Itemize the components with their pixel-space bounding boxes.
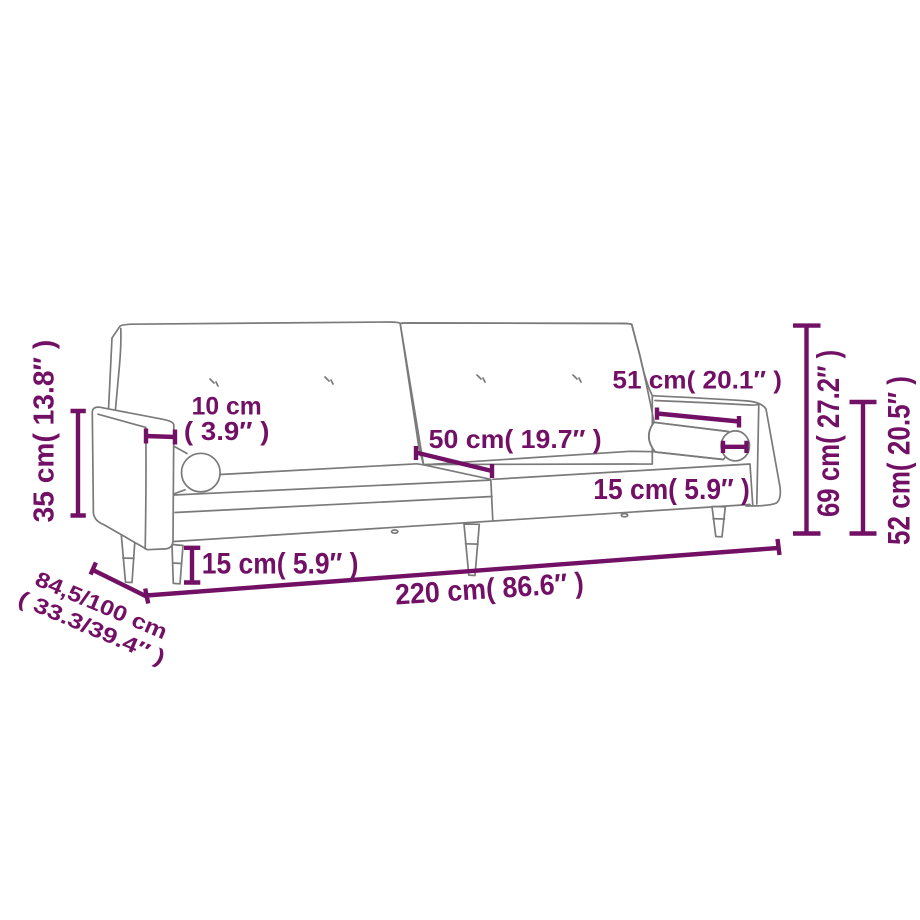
- svg-text:15 cm( 5.9″ ): 15 cm( 5.9″ ): [593, 473, 750, 505]
- svg-text:15 cm( 5.9″ ): 15 cm( 5.9″ ): [202, 547, 359, 580]
- svg-text:51 cm( 20.1″ ): 51 cm( 20.1″ ): [612, 367, 782, 395]
- svg-text:10 cm: 10 cm: [192, 394, 262, 421]
- svg-text:35 cm( 13.8″ ): 35 cm( 13.8″ ): [28, 340, 60, 523]
- svg-text:( 3.9″ ): ( 3.9″ ): [184, 418, 270, 446]
- svg-text:50 cm( 19.7″ ): 50 cm( 19.7″ ): [429, 426, 602, 454]
- svg-text:52 cm( 20.5″ ): 52 cm( 20.5″ ): [882, 376, 917, 545]
- svg-text:69 cm( 27.2″ ): 69 cm( 27.2″ ): [810, 350, 846, 517]
